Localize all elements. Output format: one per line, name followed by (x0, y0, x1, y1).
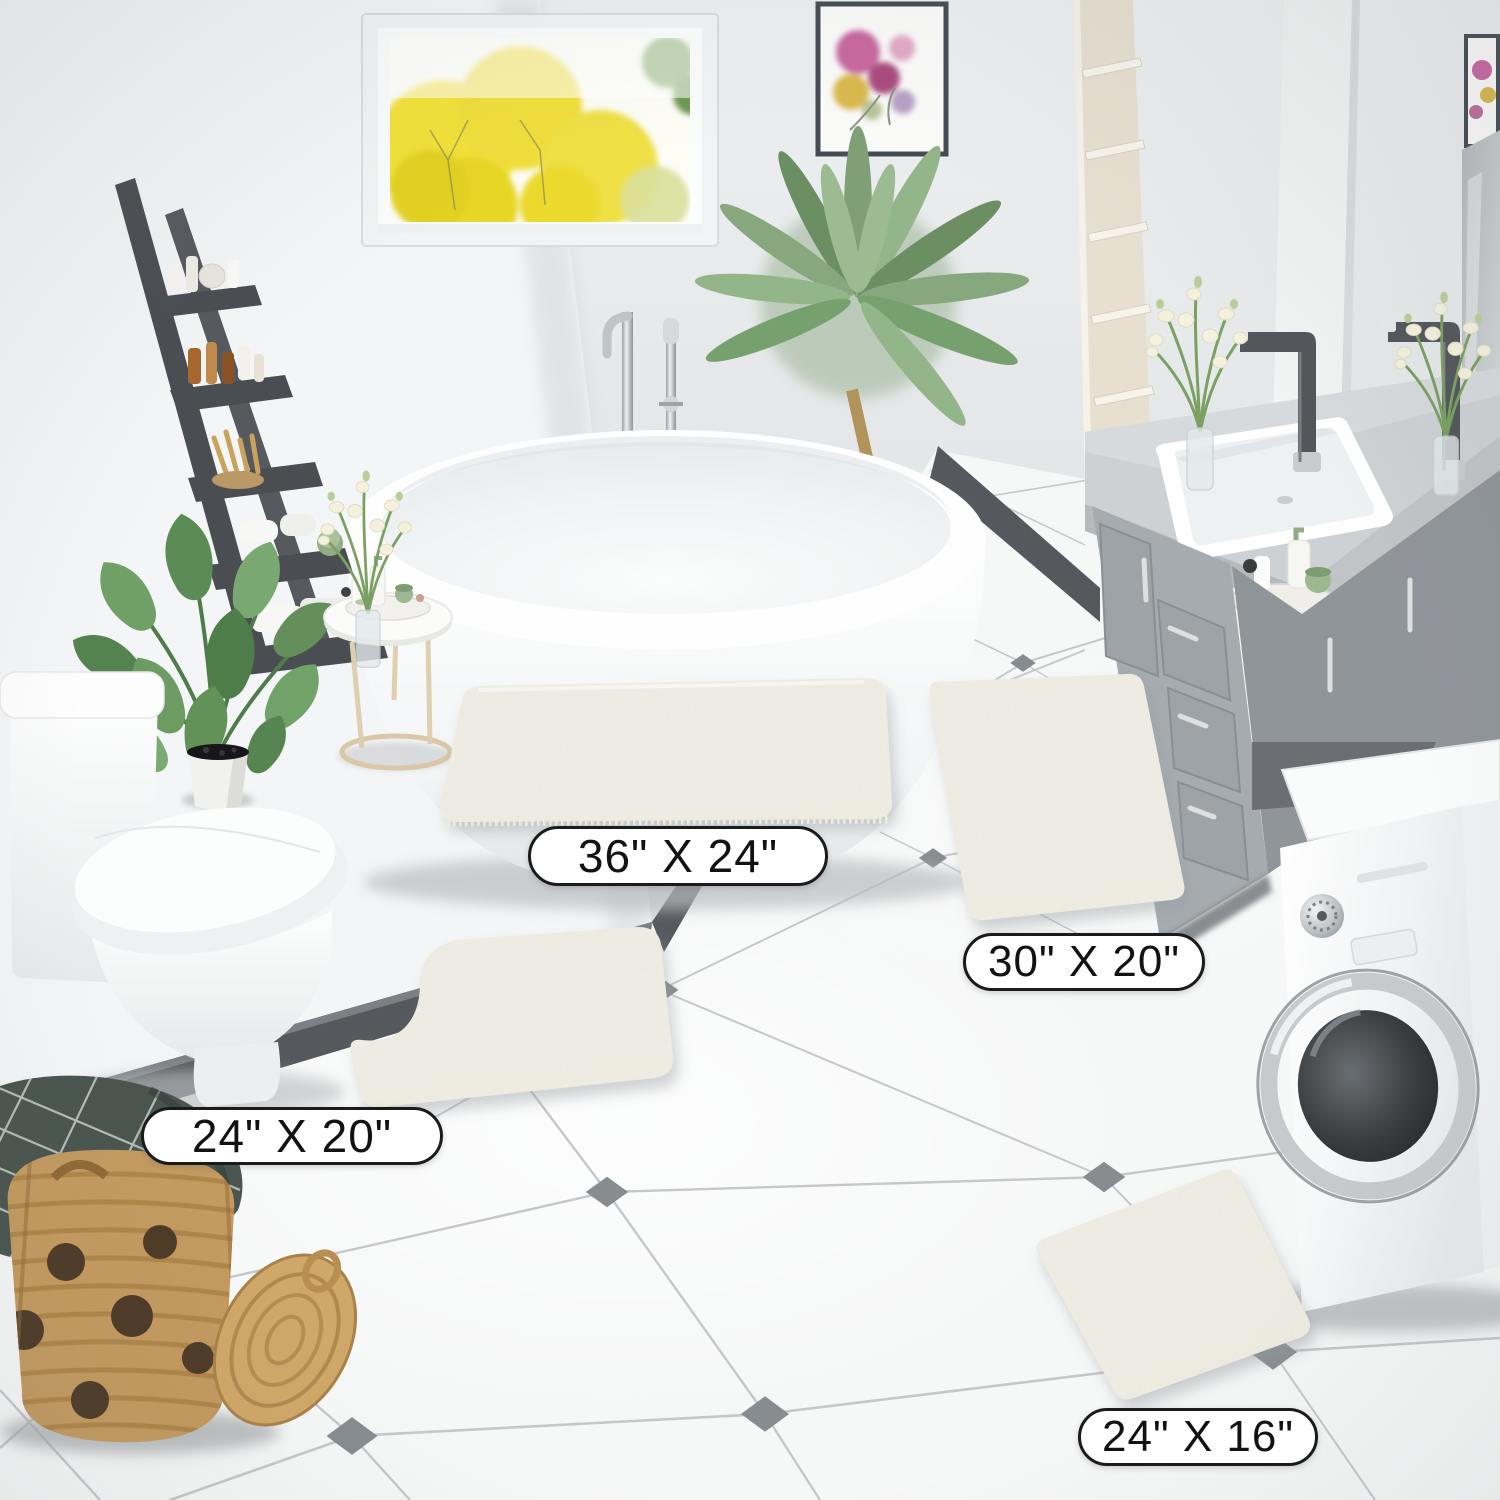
size-label-small-rug: 24" X 16" (1078, 1408, 1318, 1466)
size-label-large-rug: 36" X 24" (528, 826, 828, 886)
bathroom-product-scene: 36" X 24" 30" X 20" 24" X 20" 24" X 16" (0, 0, 1500, 1500)
vignette (0, 0, 1500, 1500)
size-label-runner-rug: 30" X 20" (963, 933, 1205, 991)
scene-render (0, 0, 1500, 1500)
size-label-contour-rug: 24" X 20" (141, 1107, 443, 1165)
